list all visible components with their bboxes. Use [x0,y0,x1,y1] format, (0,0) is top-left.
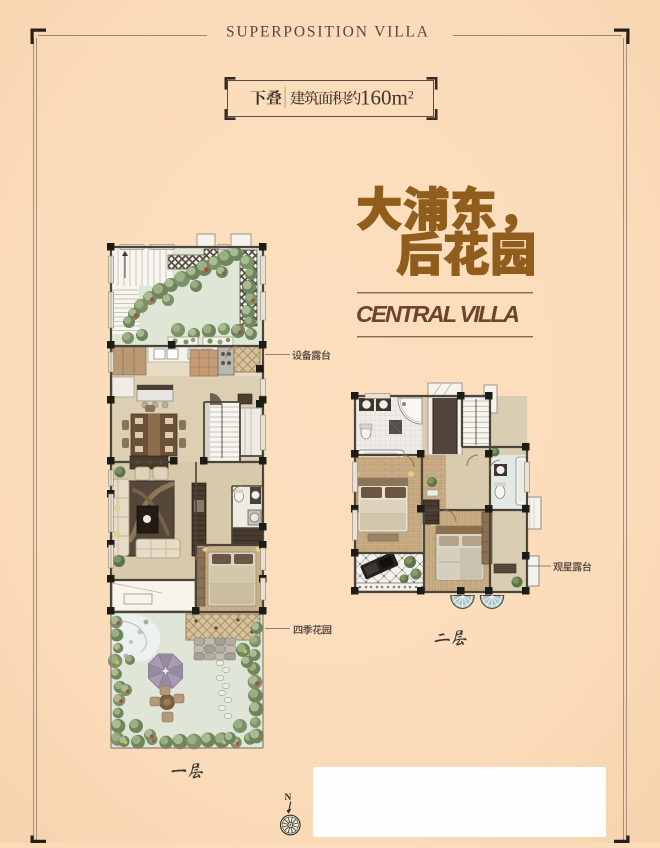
svg-text:160m2: 160m2 [360,86,414,110]
svg-text:SUPERPOSITION VILLA: SUPERPOSITION VILLA [226,24,431,41]
svg-text:CENTRAL VILLA: CENTRAL VILLA [356,301,520,327]
